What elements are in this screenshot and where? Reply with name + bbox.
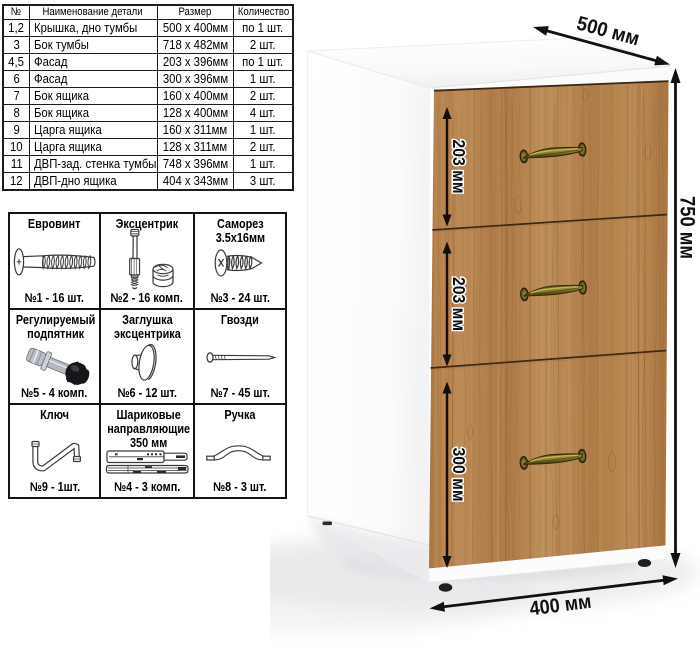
- svg-text:203 мм: 203 мм: [449, 277, 469, 331]
- svg-text:300 мм: 300 мм: [449, 448, 469, 502]
- svg-text:750 мм: 750 мм: [676, 196, 699, 259]
- svg-text:203 мм: 203 мм: [449, 140, 469, 194]
